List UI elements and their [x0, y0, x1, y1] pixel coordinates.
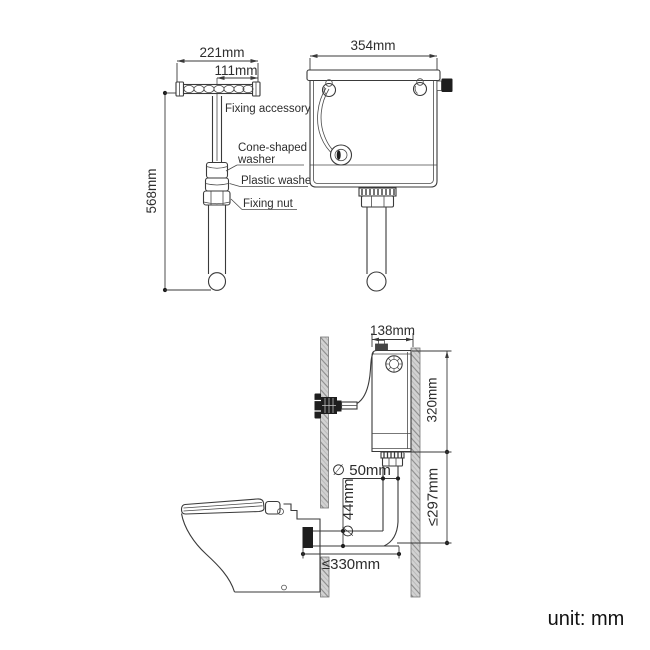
dim-320-label: 320mm: [425, 377, 440, 422]
fixing-accessory-bar: [176, 82, 260, 96]
toilet-pan: [182, 499, 321, 592]
exploded-view: 221mm 111mm: [144, 45, 315, 292]
dim-138-label: 138mm: [370, 323, 415, 338]
cistern-side-view: [372, 341, 411, 452]
dim-568-label: 568mm: [144, 168, 159, 213]
installation-view: 138mm 320mm ≤297mm ∅ 50mm: [182, 323, 452, 597]
flush-button: [331, 145, 352, 165]
flush-pipe-lower: [209, 205, 226, 290]
plastic-washer: [206, 178, 229, 191]
outlet-nut: [359, 188, 396, 207]
dim-354: 354mm: [310, 38, 437, 70]
fixing-nut: [204, 191, 231, 205]
dim-138: 138mm: [370, 323, 415, 347]
dim-44-label: ∅ 44mm: [340, 479, 357, 538]
wall-front-upper: [321, 337, 329, 508]
cone-washer-label-line2: washer: [237, 154, 275, 166]
fixing-accessory-label: Fixing accessory: [225, 103, 311, 115]
unit-note: unit: mm: [548, 608, 625, 630]
cone-shaped-washer: [207, 163, 228, 179]
actuator-cable: [357, 353, 374, 404]
dim-330-label: ≤330mm: [322, 556, 380, 573]
cistern-installation-diagram: 221mm 111mm: [0, 0, 650, 650]
part-labels: Cone-shaped washer Plastic washer Fixing…: [226, 142, 315, 210]
dim-221-label: 221mm: [199, 45, 244, 60]
fixing-clamp: [376, 344, 388, 351]
outlet-connector: [303, 527, 314, 548]
cone-washer-label-line1: Cone-shaped: [238, 142, 307, 154]
dim-330: ≤330mm: [301, 547, 401, 574]
dim-111-label: 111mm: [214, 63, 257, 78]
cistern-front-view: 354mm: [307, 38, 453, 291]
wall-rear: [411, 348, 420, 597]
fixing-nut-label: Fixing nut: [243, 198, 294, 210]
dim-354-label: 354mm: [350, 38, 395, 53]
technical-drawing-page: 221mm 111mm: [0, 0, 650, 650]
dim-297: ≤297mm: [397, 452, 452, 545]
dim-297-label: ≤297mm: [425, 468, 442, 526]
inlet-valve-knob: [386, 356, 402, 372]
dim-44: ∅ 44mm: [340, 479, 357, 549]
dim-50-label: ∅ 50mm: [332, 462, 391, 479]
dim-568: 568mm: [144, 91, 211, 292]
plastic-washer-label: Plastic washer: [241, 175, 315, 187]
flush-pipe-front: [367, 207, 386, 291]
fixing-bolt: [379, 341, 385, 345]
